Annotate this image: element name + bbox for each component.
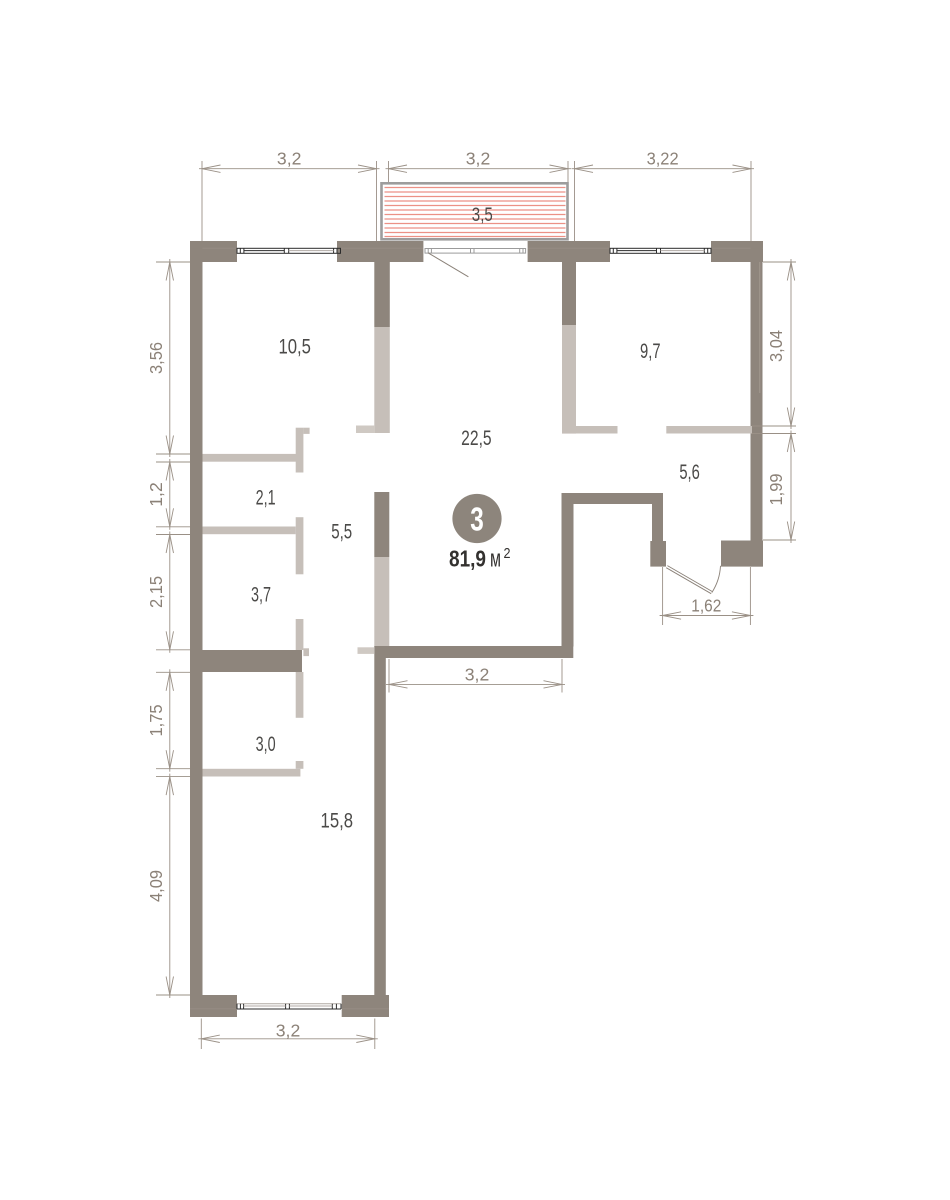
svg-text:3: 3	[470, 501, 484, 538]
svg-text:3,2: 3,2	[277, 149, 302, 169]
svg-text:1,99: 1,99	[766, 474, 786, 506]
svg-text:3,56: 3,56	[146, 342, 166, 374]
svg-text:1,75: 1,75	[146, 705, 166, 737]
svg-text:3,04: 3,04	[766, 330, 786, 362]
svg-text:2,15: 2,15	[146, 576, 166, 608]
svg-text:3,0: 3,0	[256, 733, 276, 756]
svg-text:9,7: 9,7	[640, 340, 661, 363]
svg-text:1,2: 1,2	[146, 482, 166, 507]
svg-text:3,5: 3,5	[472, 205, 493, 226]
svg-text:15,8: 15,8	[321, 810, 354, 833]
svg-text:5,5: 5,5	[331, 520, 352, 543]
svg-text:1,62: 1,62	[691, 596, 721, 616]
svg-text:4,09: 4,09	[146, 870, 166, 902]
svg-text:22,5: 22,5	[461, 427, 492, 450]
svg-text:3,2: 3,2	[466, 149, 491, 169]
svg-text:5,6: 5,6	[679, 461, 700, 484]
svg-text:3,7: 3,7	[251, 584, 271, 607]
svg-text:10,5: 10,5	[278, 336, 311, 359]
svg-text:3,22: 3,22	[647, 149, 679, 169]
svg-text:2,1: 2,1	[256, 486, 276, 509]
svg-text:3,2: 3,2	[465, 665, 490, 685]
svg-text:3,2: 3,2	[276, 1021, 301, 1041]
